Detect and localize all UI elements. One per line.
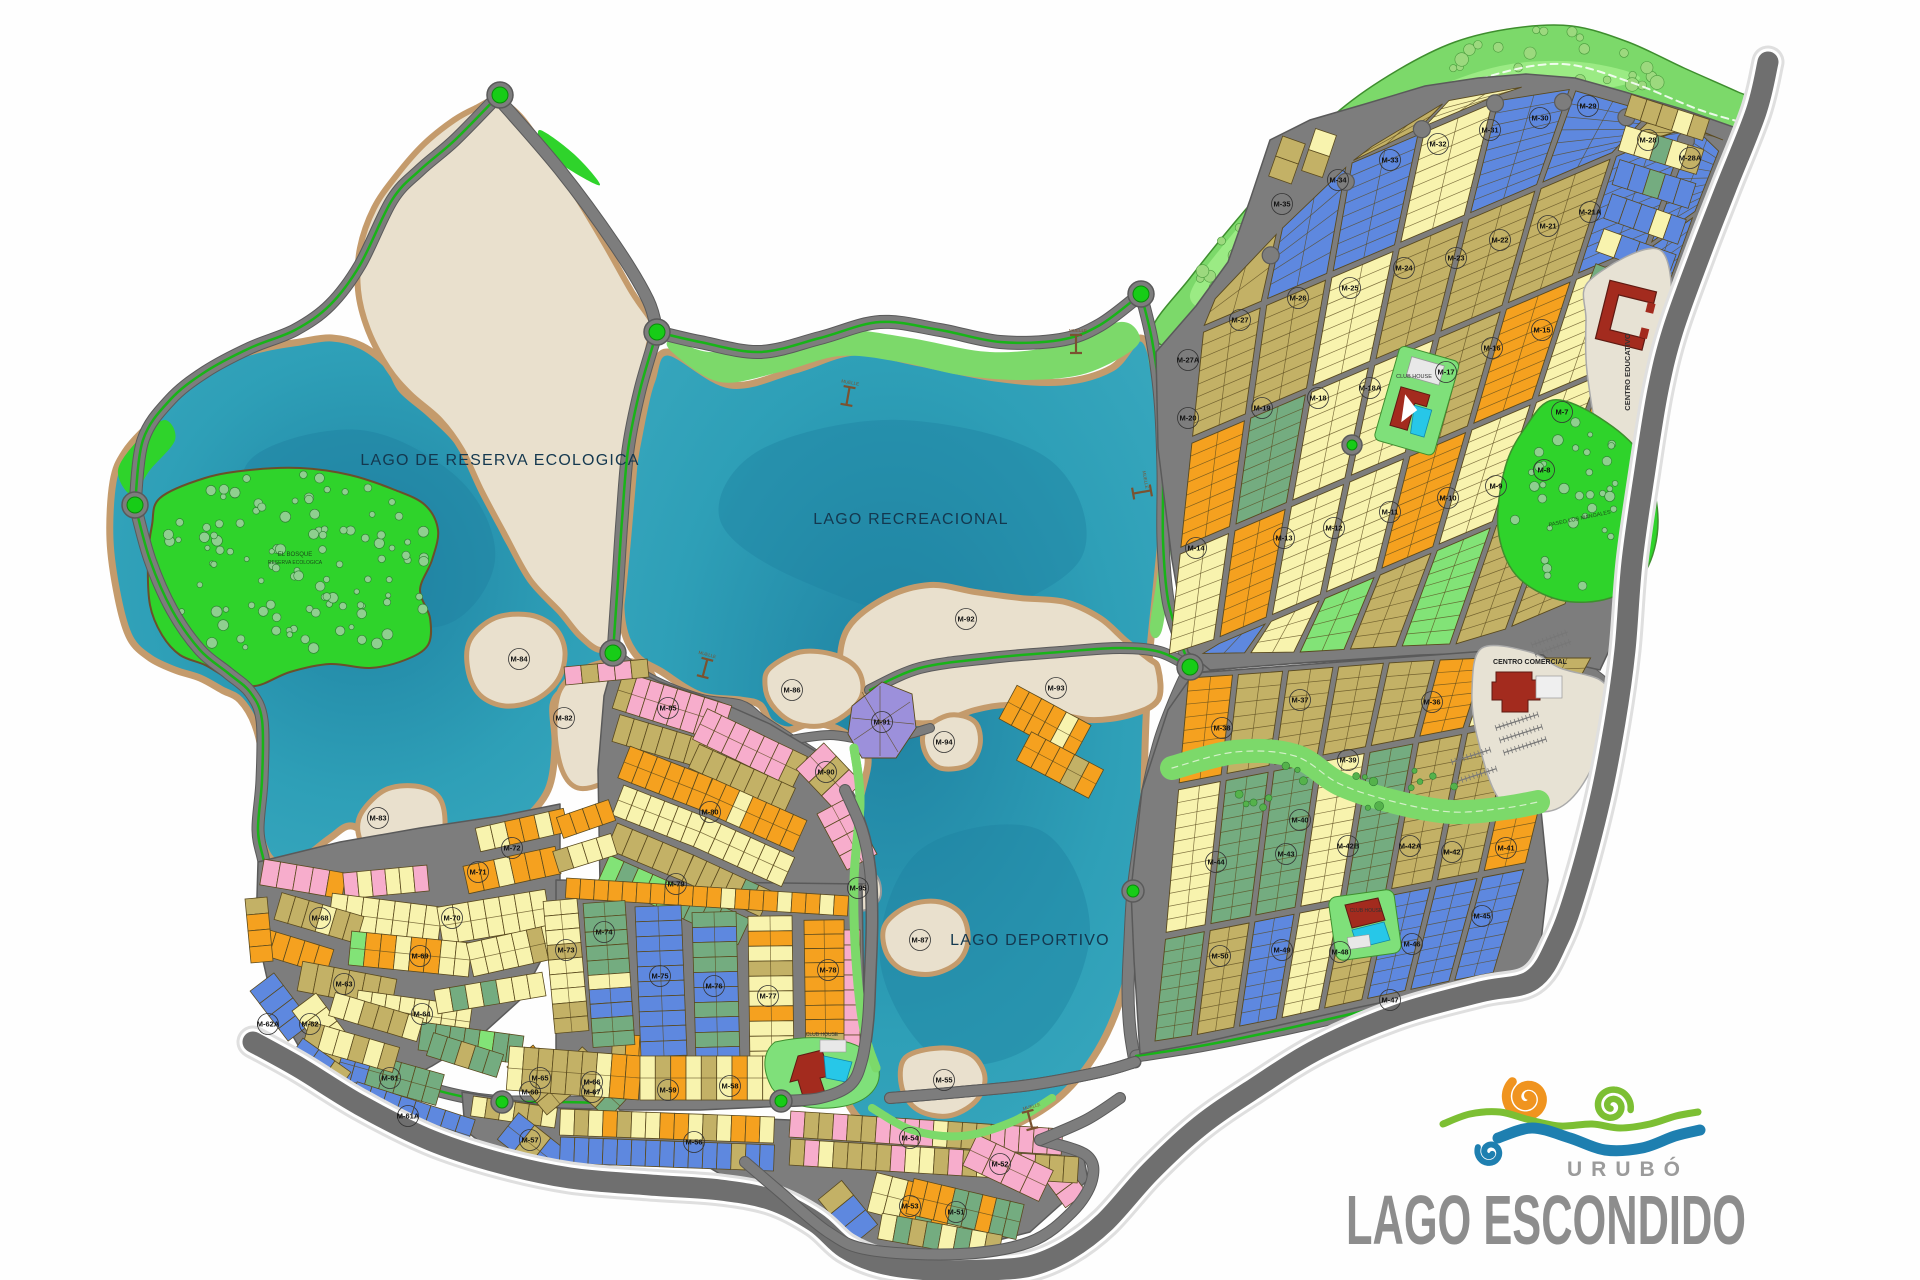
svg-text:M-34: M-34 xyxy=(1329,176,1347,185)
svg-text:M-60: M-60 xyxy=(521,1088,538,1097)
svg-text:M-62: M-62 xyxy=(301,1020,318,1029)
svg-text:M-83: M-83 xyxy=(369,814,386,823)
svg-text:CLUB HOUSE: CLUB HOUSE xyxy=(806,1032,839,1038)
svg-text:M-12: M-12 xyxy=(1325,524,1342,533)
svg-text:M-21A: M-21A xyxy=(1579,208,1602,217)
svg-text:M-54: M-54 xyxy=(901,1134,919,1143)
svg-text:M-55: M-55 xyxy=(935,1076,952,1085)
svg-text:MUELLE: MUELLE xyxy=(1069,328,1087,333)
svg-text:M-46: M-46 xyxy=(1403,940,1420,949)
svg-text:LAGO DE RESERVA ECOLOGICA: LAGO DE RESERVA ECOLOGICA xyxy=(360,452,639,469)
svg-text:M-74: M-74 xyxy=(595,928,613,937)
svg-text:M-42B: M-42B xyxy=(1337,842,1360,851)
svg-text:M-41: M-41 xyxy=(1497,844,1514,853)
svg-text:LAGO RECREACIONAL: LAGO RECREACIONAL xyxy=(813,511,1009,528)
svg-text:M-27: M-27 xyxy=(1231,316,1248,325)
svg-text:M-20: M-20 xyxy=(1179,414,1196,423)
svg-text:M-87: M-87 xyxy=(911,936,928,945)
svg-text:M-47: M-47 xyxy=(1381,996,1398,1005)
svg-text:M-53: M-53 xyxy=(901,1202,918,1211)
svg-text:M-33: M-33 xyxy=(1381,156,1398,165)
svg-text:RESERVA ECOLOGICA: RESERVA ECOLOGICA xyxy=(268,560,323,566)
svg-text:M-51: M-51 xyxy=(947,1208,964,1217)
svg-text:M-65: M-65 xyxy=(531,1074,548,1083)
svg-text:M-80: M-80 xyxy=(701,808,718,817)
svg-text:M-92: M-92 xyxy=(957,615,974,624)
svg-text:M-40: M-40 xyxy=(1291,816,1308,825)
svg-text:M-42: M-42 xyxy=(1443,848,1460,857)
svg-text:M-13: M-13 xyxy=(1275,534,1292,543)
svg-text:M-38: M-38 xyxy=(1213,724,1230,733)
svg-text:M-86: M-86 xyxy=(783,686,800,695)
svg-text:M-35: M-35 xyxy=(1273,200,1290,209)
svg-text:M-10: M-10 xyxy=(1439,494,1456,503)
svg-text:M-24: M-24 xyxy=(1395,264,1413,273)
svg-text:M-36: M-36 xyxy=(1423,698,1440,707)
svg-text:LAGO DEPORTIVO: LAGO DEPORTIVO xyxy=(950,932,1110,949)
svg-text:M-77: M-77 xyxy=(759,992,776,1001)
svg-text:M-90: M-90 xyxy=(817,768,834,777)
svg-text:M-61A: M-61A xyxy=(397,1112,420,1121)
svg-text:M-75: M-75 xyxy=(651,972,668,981)
svg-text:M-17: M-17 xyxy=(1437,368,1454,377)
svg-text:CENTRO COMERCIAL: CENTRO COMERCIAL xyxy=(1493,659,1568,666)
svg-text:M-66: M-66 xyxy=(583,1078,600,1087)
svg-text:M-43: M-43 xyxy=(1277,850,1294,859)
svg-text:M-18A: M-18A xyxy=(1359,384,1382,393)
svg-text:M-45: M-45 xyxy=(1473,912,1490,921)
svg-text:M-70: M-70 xyxy=(443,914,460,923)
svg-text:M-62A: M-62A xyxy=(257,1020,280,1029)
svg-text:M-30: M-30 xyxy=(1531,114,1548,123)
svg-text:M-23: M-23 xyxy=(1447,254,1464,263)
svg-text:M-63: M-63 xyxy=(335,980,352,989)
svg-text:M-9: M-9 xyxy=(1490,482,1503,491)
svg-text:LAGO ESCONDIDO: LAGO ESCONDIDO xyxy=(1346,1181,1746,1259)
svg-text:M-28A: M-28A xyxy=(1679,154,1702,163)
svg-text:URUBÓ: URUBÓ xyxy=(1567,1157,1689,1181)
svg-text:M-57: M-57 xyxy=(521,1136,538,1145)
svg-text:M-67: M-67 xyxy=(583,1088,600,1097)
svg-text:M-25: M-25 xyxy=(1341,284,1358,293)
svg-text:M-73: M-73 xyxy=(557,946,574,955)
svg-text:M-78: M-78 xyxy=(819,966,836,975)
svg-text:M-48: M-48 xyxy=(1331,948,1348,957)
svg-text:M-15: M-15 xyxy=(1533,326,1550,335)
svg-text:M-79: M-79 xyxy=(667,880,684,889)
svg-text:M-21: M-21 xyxy=(1539,222,1556,231)
svg-text:M-39: M-39 xyxy=(1339,756,1356,765)
svg-text:M-31: M-31 xyxy=(1481,126,1498,135)
svg-text:M-27A: M-27A xyxy=(1177,356,1200,365)
svg-text:M-19: M-19 xyxy=(1253,404,1270,413)
svg-text:M-29: M-29 xyxy=(1579,102,1596,111)
svg-text:M-61: M-61 xyxy=(381,1074,398,1083)
svg-text:CENTRO EDUCATIVO: CENTRO EDUCATIVO xyxy=(1623,333,1632,411)
svg-text:M-22: M-22 xyxy=(1491,236,1508,245)
svg-text:M-59: M-59 xyxy=(659,1086,676,1095)
svg-text:M-42A: M-42A xyxy=(1399,842,1422,851)
svg-text:M-85: M-85 xyxy=(659,704,676,713)
svg-text:M-18: M-18 xyxy=(1309,394,1326,403)
svg-text:M-44: M-44 xyxy=(1207,858,1225,867)
svg-text:M-84: M-84 xyxy=(510,655,528,664)
svg-text:M-16: M-16 xyxy=(1483,344,1500,353)
svg-text:M-8: M-8 xyxy=(1538,466,1551,475)
svg-text:M-56: M-56 xyxy=(685,1138,702,1147)
svg-text:M-52: M-52 xyxy=(991,1160,1008,1169)
svg-text:M-76: M-76 xyxy=(705,982,722,991)
svg-text:M-69: M-69 xyxy=(411,952,428,961)
svg-text:M-68: M-68 xyxy=(311,914,328,923)
svg-text:M-58: M-58 xyxy=(721,1082,738,1091)
svg-text:M-93: M-93 xyxy=(1047,684,1064,693)
svg-text:M-95: M-95 xyxy=(849,884,866,893)
svg-text:M-64: M-64 xyxy=(413,1010,431,1019)
svg-text:M-28: M-28 xyxy=(1639,136,1656,145)
svg-text:M-49: M-49 xyxy=(1273,946,1290,955)
svg-text:M-37: M-37 xyxy=(1291,696,1308,705)
svg-text:M-72: M-72 xyxy=(503,844,520,853)
svg-text:M-11: M-11 xyxy=(1382,508,1399,517)
svg-text:M-82: M-82 xyxy=(555,714,572,723)
svg-text:M-91: M-91 xyxy=(873,718,890,727)
svg-text:EL BOSQUE: EL BOSQUE xyxy=(278,552,312,558)
svg-text:M-94: M-94 xyxy=(935,738,953,747)
svg-text:CLUB HOUSE: CLUB HOUSE xyxy=(1350,908,1383,914)
svg-text:M-32: M-32 xyxy=(1429,140,1446,149)
svg-text:M-14: M-14 xyxy=(1187,544,1205,553)
svg-text:M-50: M-50 xyxy=(1211,952,1228,961)
svg-text:M-7: M-7 xyxy=(1556,408,1569,417)
svg-text:M-71: M-71 xyxy=(469,868,486,877)
svg-text:CLUB HOUSE: CLUB HOUSE xyxy=(1396,374,1432,380)
svg-text:M-26: M-26 xyxy=(1289,294,1306,303)
